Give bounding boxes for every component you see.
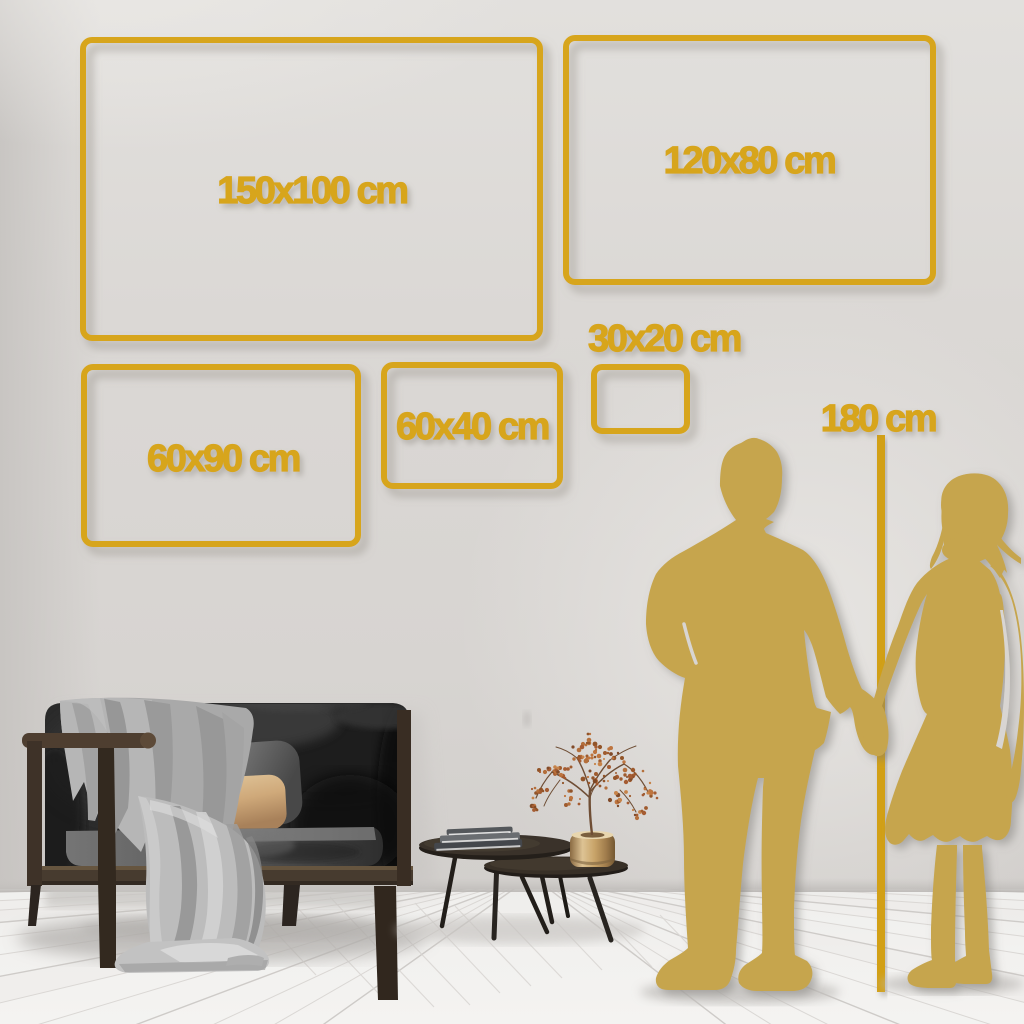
svg-text:60x40 cm: 60x40 cm	[396, 406, 549, 448]
svg-text:30x20 cm: 30x20 cm	[588, 318, 741, 360]
svg-text:60x90 cm: 60x90 cm	[147, 438, 300, 480]
svg-text:180 cm: 180 cm	[821, 398, 936, 440]
svg-text:120x80 cm: 120x80 cm	[664, 140, 835, 182]
svg-text:150x100 cm: 150x100 cm	[217, 170, 407, 212]
